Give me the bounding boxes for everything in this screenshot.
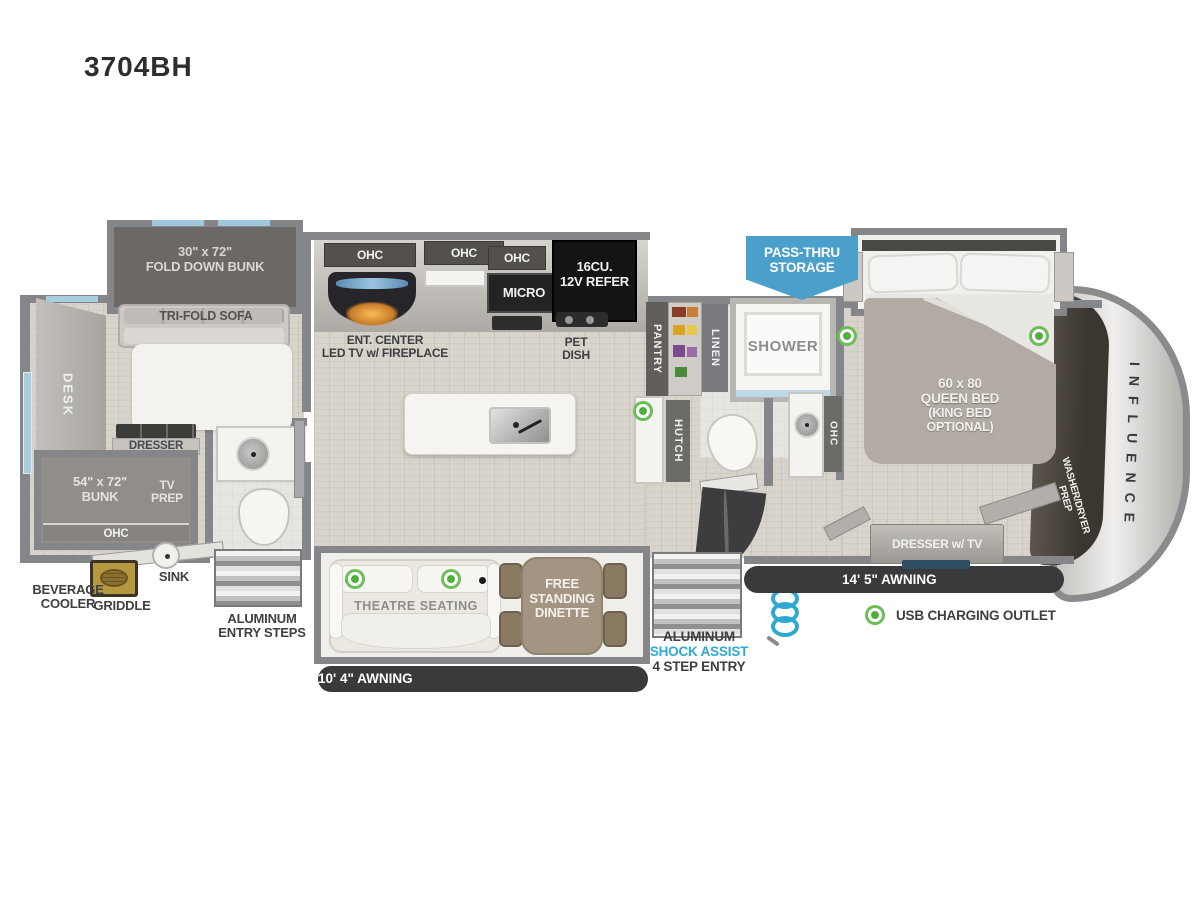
refrigerator: 16CU. 12V REFER — [552, 240, 637, 322]
bunkroom-top-window — [46, 296, 98, 302]
bed-label2: QUEEN BED — [886, 391, 1034, 406]
shower: SHOWER — [730, 298, 836, 402]
refer-label1: 16CU. — [554, 260, 635, 275]
dinette-chair-bl — [499, 611, 523, 647]
theatre-seating-label: THEATRE SEATING — [333, 599, 499, 613]
rear-window — [23, 372, 32, 474]
usb-outlet-bedroom-left — [840, 329, 854, 343]
dinette-chair-tl — [499, 563, 523, 599]
main-entry-steps — [652, 552, 742, 638]
tv-prep-label1: TV — [145, 479, 189, 492]
bunk-ohc-label: OHC — [43, 525, 189, 543]
rear-entry-steps — [214, 549, 302, 607]
bedroom-dresser-label: DRESSER w/ TV — [871, 525, 1003, 563]
bunk-54-slide: 54" x 72" BUNK TV PREP OHC — [34, 450, 198, 550]
usb-outlet-hutch — [636, 404, 650, 418]
dinette-label3: DINETTE — [523, 606, 601, 621]
slide-window-left — [152, 220, 204, 226]
bunkroom-rug — [132, 344, 292, 430]
usb-outlet-theatre-left — [348, 572, 362, 586]
bed-label1: 60 x 80 — [886, 376, 1034, 391]
bedroom-tv — [902, 560, 970, 569]
ohc-left-band: OHC — [324, 243, 416, 267]
fold-down-bunk-slide: 30" x 72" FOLD DOWN BUNK — [107, 220, 303, 314]
slide-window-right — [218, 220, 270, 226]
pass-thru-label2: STORAGE — [746, 260, 858, 275]
page-title: 3704BH — [84, 52, 193, 83]
pantry-strip: PANTRY — [646, 302, 668, 396]
dinette-label2: STANDING — [523, 592, 601, 607]
pet-dish — [556, 312, 608, 327]
bed-headboard — [862, 240, 1056, 251]
bedroom-dresser: DRESSER w/ TV — [870, 524, 1004, 564]
usb-outlet-bedroom-right — [1032, 329, 1046, 343]
rear-steps-label2: ENTRY STEPS — [208, 626, 316, 640]
dinette-label1: FREE — [523, 577, 601, 592]
dinette-table: FREE STANDING DINETTE — [521, 557, 603, 655]
ent-center-label2: LED TV w/ FIREPLACE — [310, 347, 460, 360]
tri-fold-sofa-label: TRI-FOLD SOFA — [128, 310, 284, 324]
pillow-left — [867, 252, 958, 293]
micro-label: MICRO — [489, 275, 559, 311]
awning-main-label: 14' 5" AWNING — [744, 566, 1064, 593]
bunk54-label2: BUNK — [55, 490, 145, 505]
griddle-label: GRIDDLE — [88, 599, 156, 613]
fireplace-glow — [346, 302, 398, 326]
entry-label1: ALUMINUM — [640, 630, 758, 645]
awning-living-label: 10' 4" AWNING — [318, 666, 648, 692]
bed-label4: OPTIONAL) — [886, 420, 1034, 434]
kitchen-island — [404, 393, 576, 455]
shock-assist-spring-icon — [768, 590, 802, 646]
hutch-strip: HUTCH — [666, 400, 690, 482]
entry-label2: SHOCK ASSIST — [640, 645, 758, 660]
linen-closet: LINEN — [702, 304, 728, 392]
toilet-room-wall — [764, 398, 773, 486]
dinette-chair-tr — [603, 563, 627, 599]
ohc-right-label: OHC — [489, 247, 545, 269]
living-top-wall — [308, 232, 650, 240]
living-slide: THEATRE SEATING FREE STANDING DINETTE — [314, 546, 650, 664]
ohc-right-band: OHC — [488, 246, 546, 270]
desk-label: DESK — [56, 330, 80, 460]
entry-label3: 4 STEP ENTRY — [640, 660, 758, 675]
bunkroom-dresser — [116, 424, 196, 438]
bunk54-label1: 54" x 72" — [55, 475, 145, 490]
pillow-right — [959, 252, 1050, 293]
kitchen-drawer — [424, 269, 486, 287]
outside-sink-label: SINK — [152, 570, 196, 584]
bunk-ohc: OHC — [43, 523, 189, 541]
pass-thru-banner: PASS-THRU STORAGE — [746, 236, 858, 300]
bath-ohc-strip: OHC — [824, 396, 842, 472]
rear-bath-left-wall — [205, 418, 213, 558]
awning-living: 10' 4" AWNING — [318, 666, 648, 692]
bed-label3: (KING BED — [886, 406, 1034, 420]
beverage-cooler-label1: BEVERAGE — [26, 583, 110, 597]
island-sink — [489, 407, 551, 444]
fold-down-bunk-label2: FOLD DOWN BUNK — [114, 260, 296, 275]
awning-main: 14' 5" AWNING — [744, 566, 1064, 593]
nightstand-right — [1054, 252, 1074, 302]
pass-thru-label1: PASS-THRU — [746, 245, 858, 260]
tv-prep-label2: PREP — [145, 492, 189, 505]
outside-sink — [152, 542, 180, 569]
rear-steps-label1: ALUMINUM — [208, 612, 316, 626]
rear-bath-door — [294, 420, 305, 498]
dinette-chair-br — [603, 611, 627, 647]
floorplan-canvas: 3704BH WASHER/DRYER PREP INFLUENCE 30" x… — [0, 0, 1200, 900]
microwave: MICRO — [487, 273, 561, 313]
shower-label: SHOWER — [736, 338, 830, 355]
refer-label2: 12V REFER — [554, 275, 635, 290]
fold-down-bunk-label1: 30" x 72" — [114, 245, 296, 260]
bunkroom-living-wall-upper — [302, 232, 311, 412]
ohc-left-label: OHC — [325, 244, 415, 266]
usb-legend-label: USB CHARGING OUTLET — [896, 609, 1076, 624]
bath-sink-counter — [788, 392, 824, 478]
pet-dish-label2: DISH — [546, 349, 606, 362]
usb-legend-icon — [868, 608, 882, 622]
cooktop — [492, 316, 542, 330]
pantry-shelves — [668, 302, 702, 396]
rear-bath-counter — [216, 426, 302, 482]
usb-outlet-theatre-right — [444, 572, 458, 586]
